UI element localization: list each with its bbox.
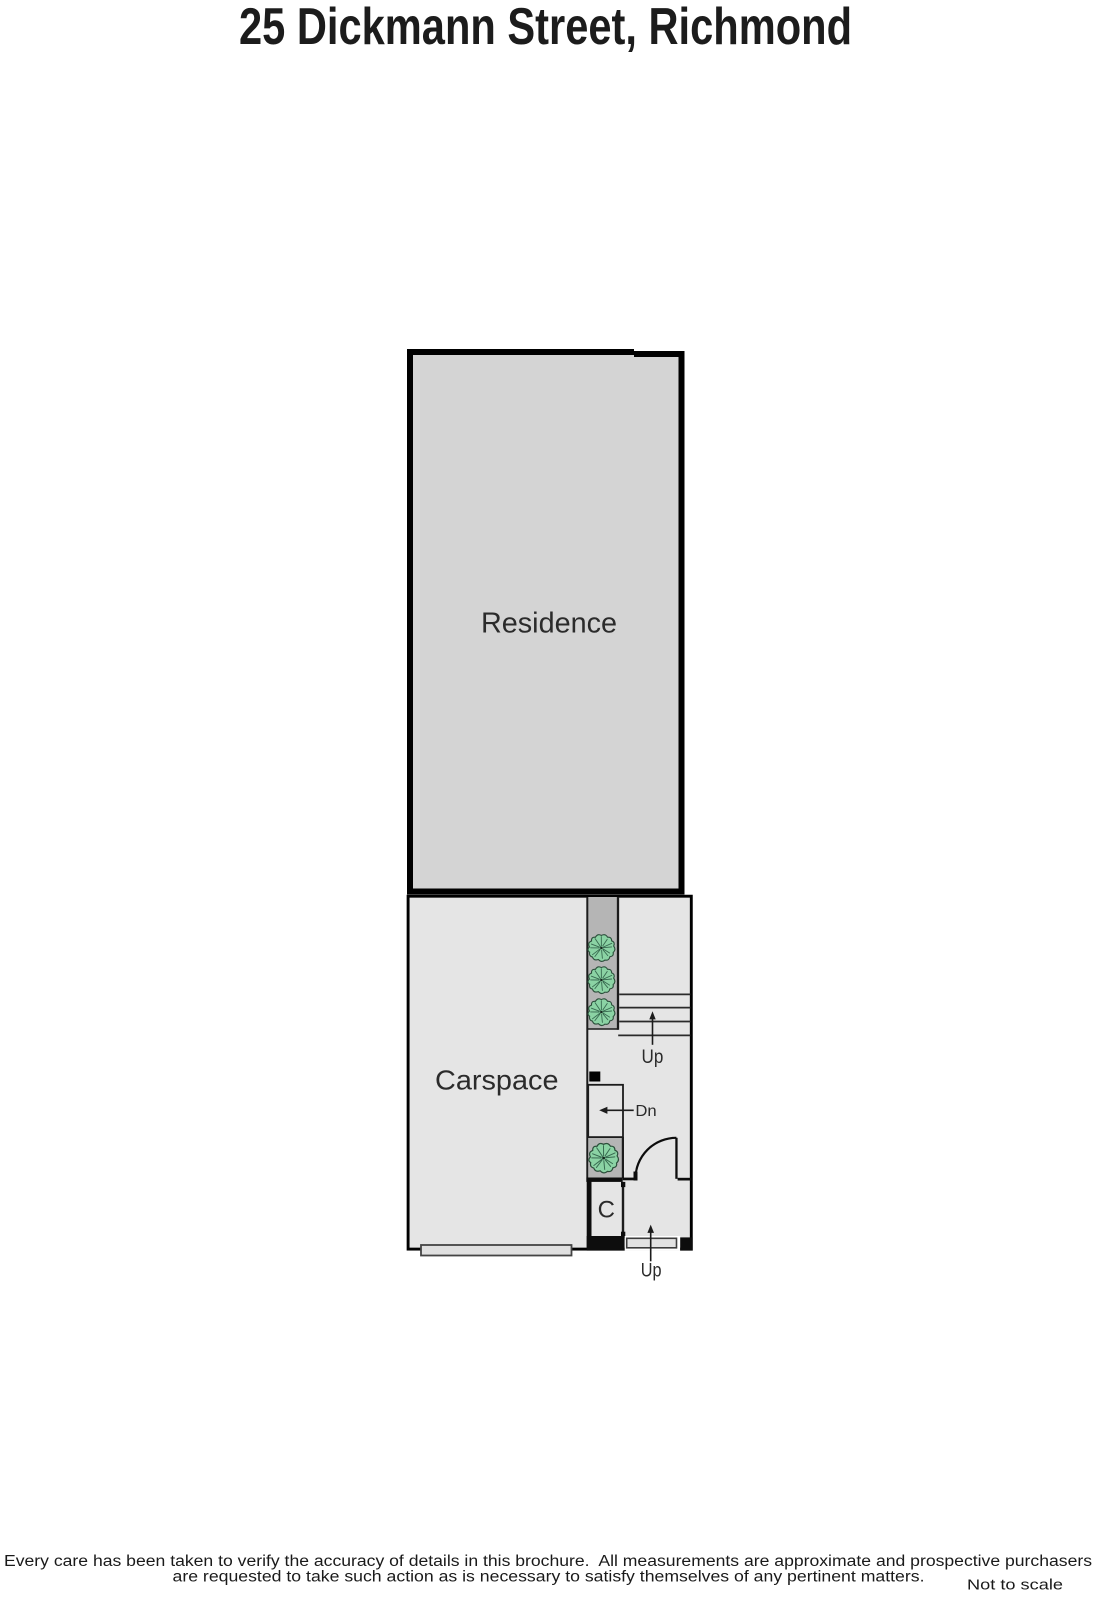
svg-text:Residence: Residence	[481, 608, 617, 640]
svg-text:are requested to take such act: are requested to take such action as is …	[173, 1569, 925, 1586]
svg-text:Dn: Dn	[635, 1103, 656, 1120]
svg-text:Up: Up	[641, 1261, 662, 1282]
svg-text:Carspace: Carspace	[435, 1065, 559, 1096]
svg-text:C: C	[598, 1197, 615, 1224]
svg-text:Every care has been taken to v: Every care has been taken to verify the …	[4, 1553, 1092, 1570]
svg-text:Not to scale: Not to scale	[967, 1577, 1063, 1594]
svg-text:25 Dickmann Street, Richmond: 25 Dickmann Street, Richmond	[239, 0, 852, 56]
svg-text:Up: Up	[642, 1047, 664, 1068]
